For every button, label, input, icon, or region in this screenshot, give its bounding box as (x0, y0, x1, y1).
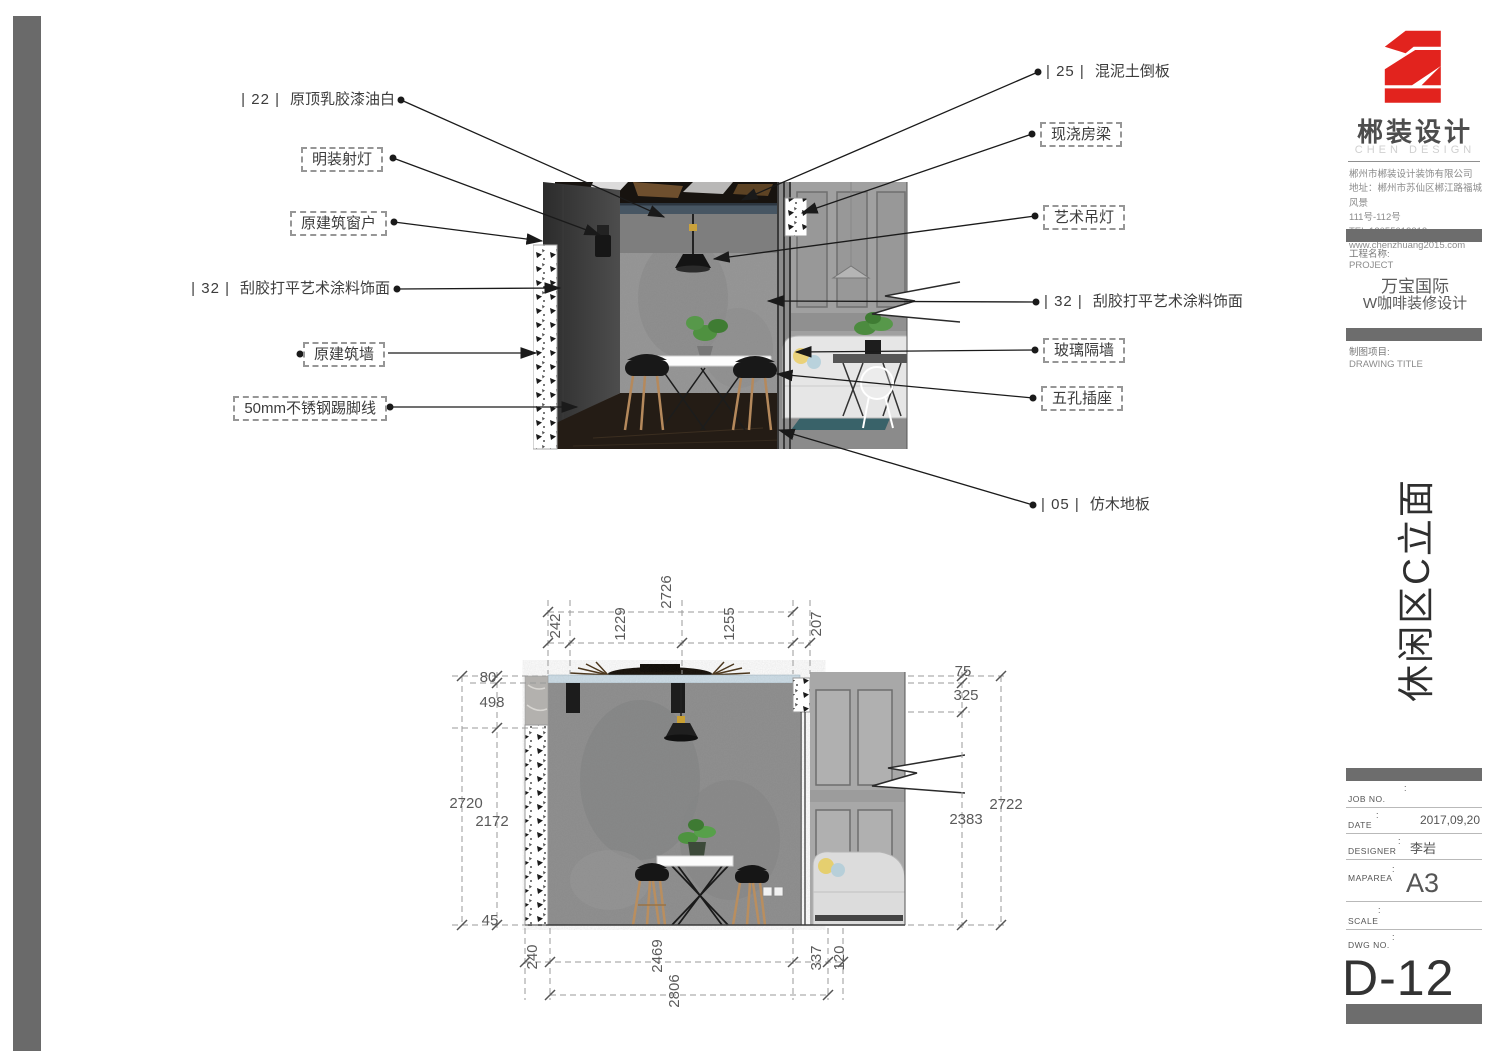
brand-logo (1372, 22, 1452, 110)
annotation-art-coating-right: | 32 |刮胶打平艺术涂料饰面 (1044, 291, 1243, 313)
maparea-value: A3 (1406, 868, 1439, 899)
dwg-no-row: : DWG NO. (1346, 930, 1482, 953)
dim-bottom-seg-3: 120 (831, 945, 848, 970)
annotation-ceiling-paint: | 22 |原顶乳胶漆油白 (241, 89, 395, 111)
annotation-art-pendant: 艺术吊灯 (1043, 205, 1125, 230)
annotation-art-coating-left: | 32 |刮胶打平艺术涂料饰面 (191, 278, 390, 300)
designer-value: 李岩 (1410, 838, 1436, 857)
designer-row: : DESIGNER 李岩 (1346, 834, 1482, 860)
dim-left-seg-3: 45 (482, 912, 499, 929)
left-margin-bar (13, 16, 41, 1051)
job-no-row: : JOB NO. (1346, 781, 1482, 808)
maparea-row: : MAPAREA A3 (1346, 860, 1482, 902)
annotation-cast-beam: 现浇房梁 (1040, 122, 1122, 147)
annotation-glass-partition: 玻璃隔墙 (1043, 338, 1125, 363)
dim-bottom-seg-1: 2469 (649, 939, 666, 972)
annotation-skirting: 50mm不锈钢踢脚线 (233, 396, 387, 421)
scale-row: : SCALE (1346, 902, 1482, 930)
dim-bottom-seg-0: 240 (524, 944, 541, 969)
date-value: 2017,09,20 (1420, 813, 1480, 827)
annotation-original-window: 原建筑窗户 (290, 211, 387, 236)
drawing-title-label-en: DRAWING TITLE (1349, 358, 1423, 372)
lower-elevation-drawing (520, 660, 965, 930)
dim-bottom-seg-2: 337 (808, 945, 825, 970)
upper-elevation-render (533, 178, 963, 453)
annotation-socket: 五孔插座 (1041, 386, 1123, 411)
brand-subtitle: CHEN DESIGN (1348, 144, 1482, 156)
dim-left-seg-0: 80 (480, 669, 497, 686)
drawing-sheet: 2726 242 1229 1255 207 2720 80 498 2172 … (0, 0, 1500, 1061)
dim-left-seg-2: 2172 (475, 813, 508, 830)
project-name-line2: W咖啡装修设计 (1348, 292, 1482, 313)
date-row: : DATE 2017,09,20 (1346, 808, 1482, 834)
annotation-surface-spotlight: 明装射灯 (301, 147, 383, 172)
section-bar-drawing (1346, 328, 1482, 341)
annotation-concrete-slab: | 25 |混泥土倒板 (1046, 61, 1170, 83)
dim-top-seg-2: 1255 (721, 607, 738, 640)
brand-divider (1348, 161, 1480, 162)
title-block-bottom-bar (1346, 1004, 1482, 1024)
dim-top-total: 2726 (658, 575, 675, 608)
dim-top-seg-3: 207 (808, 611, 825, 636)
title-block-top-bar (1346, 768, 1482, 781)
dim-left-seg-1: 498 (479, 694, 504, 711)
dim-top-seg-1: 1229 (612, 607, 629, 640)
section-bar-project (1346, 229, 1482, 242)
dim-bottom-total: 2806 (666, 974, 683, 1007)
dim-right-outer: 2722 (989, 796, 1022, 813)
dim-left-outer: 2720 (449, 795, 482, 812)
dwg-number: D-12 (1342, 953, 1482, 1004)
annotation-wood-floor: | 05 |仿木地板 (1041, 494, 1150, 516)
sheet-title-vertical: 休闲区C立面 (1386, 475, 1430, 705)
annotation-original-wall: 原建筑墙 (303, 342, 385, 367)
title-block: : JOB NO. : DATE 2017,09,20 : DESIGNER 李… (1346, 768, 1482, 1004)
dim-top-seg-0: 242 (547, 613, 564, 638)
